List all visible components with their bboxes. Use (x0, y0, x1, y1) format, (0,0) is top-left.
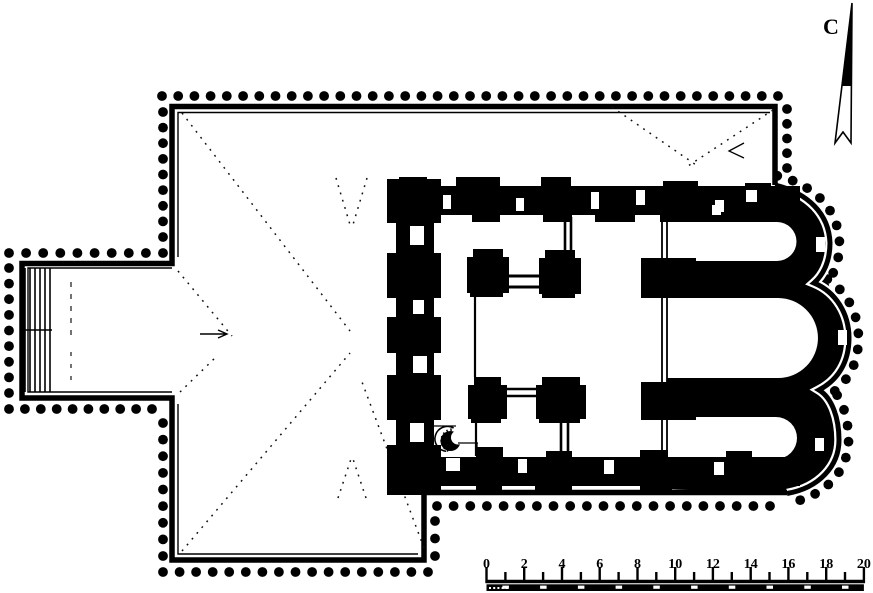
svg-text:16: 16 (781, 557, 795, 572)
svg-text:0: 0 (483, 557, 490, 572)
svg-text:C: C (823, 14, 839, 39)
svg-text:4: 4 (559, 557, 566, 572)
svg-text:20: 20 (857, 557, 871, 572)
svg-text:10: 10 (668, 557, 682, 572)
svg-text:18: 18 (819, 557, 833, 572)
svg-text:12: 12 (706, 557, 720, 572)
svg-text:14: 14 (744, 557, 758, 572)
svg-text:6: 6 (596, 557, 603, 572)
svg-text:2: 2 (521, 557, 528, 572)
svg-text:8: 8 (634, 557, 641, 572)
